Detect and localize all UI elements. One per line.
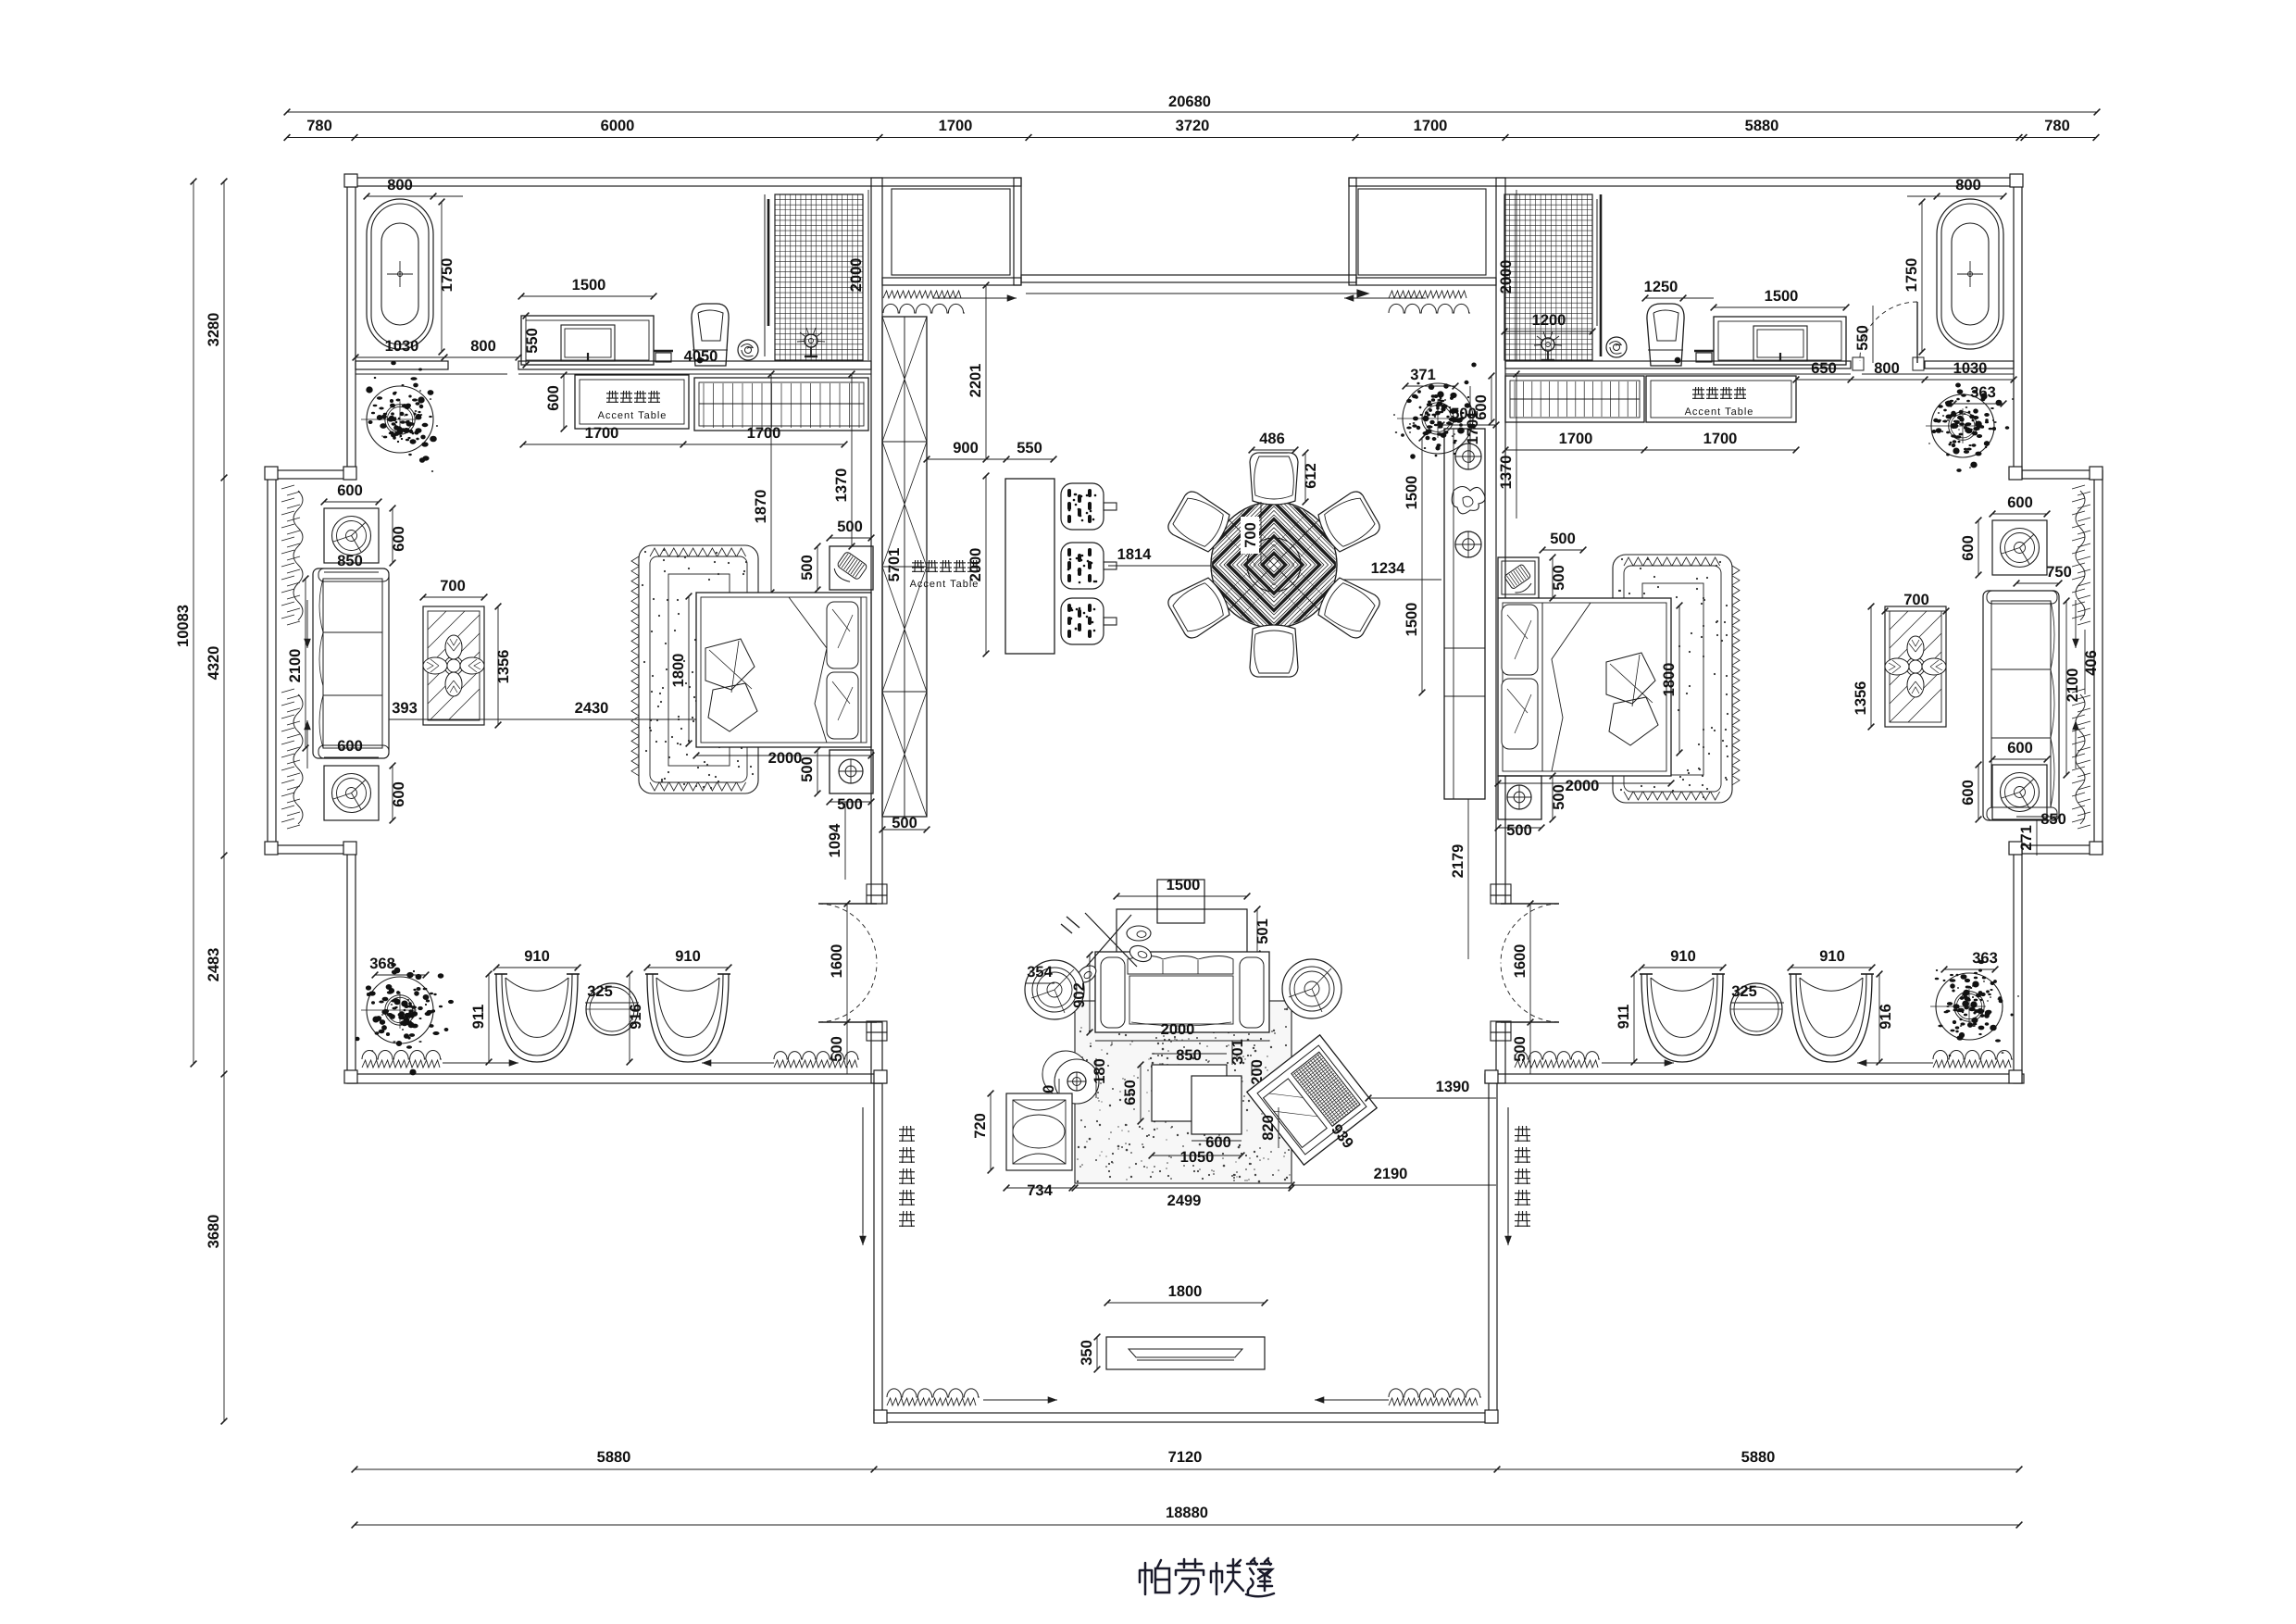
svg-text:1700: 1700 bbox=[1559, 431, 1593, 447]
svg-text:500: 500 bbox=[1551, 565, 1567, 591]
svg-text:501: 501 bbox=[1254, 918, 1271, 944]
svg-text:2483: 2483 bbox=[206, 948, 222, 982]
svg-text:1370: 1370 bbox=[833, 468, 850, 503]
svg-text:Accent Table: Accent Table bbox=[1685, 406, 1754, 418]
svg-text:800: 800 bbox=[470, 338, 496, 355]
svg-text:600: 600 bbox=[1960, 780, 1977, 806]
svg-text:1390: 1390 bbox=[1436, 1079, 1470, 1095]
svg-text:1700: 1700 bbox=[1703, 431, 1738, 447]
svg-text:1500: 1500 bbox=[1765, 288, 1799, 305]
svg-text:800: 800 bbox=[387, 177, 413, 194]
svg-text:600: 600 bbox=[1473, 394, 1490, 420]
svg-text:301: 301 bbox=[1229, 1039, 1246, 1065]
svg-text:600: 600 bbox=[1960, 535, 1977, 561]
svg-text:720: 720 bbox=[972, 1113, 989, 1139]
svg-text:910: 910 bbox=[675, 948, 701, 965]
svg-text:1500: 1500 bbox=[1404, 603, 1420, 637]
svg-text:911: 911 bbox=[470, 1005, 487, 1030]
svg-text:10083: 10083 bbox=[175, 605, 192, 647]
svg-text:2201: 2201 bbox=[967, 364, 984, 398]
svg-text:550: 550 bbox=[1854, 325, 1871, 351]
svg-text:325: 325 bbox=[587, 983, 613, 1000]
svg-text:6000: 6000 bbox=[601, 118, 635, 134]
svg-text:820: 820 bbox=[1260, 1115, 1277, 1141]
svg-text:916: 916 bbox=[628, 1004, 644, 1030]
svg-text:2100: 2100 bbox=[2065, 668, 2081, 703]
svg-text:500: 500 bbox=[837, 518, 863, 535]
svg-text:911: 911 bbox=[1616, 1005, 1632, 1030]
svg-text:650: 650 bbox=[1811, 360, 1837, 377]
svg-text:2000: 2000 bbox=[1161, 1021, 1195, 1038]
svg-text:600: 600 bbox=[2007, 740, 2033, 756]
svg-text:1700: 1700 bbox=[747, 425, 781, 442]
svg-text:600: 600 bbox=[337, 482, 363, 499]
svg-text:550: 550 bbox=[1017, 440, 1042, 456]
svg-text:20680: 20680 bbox=[1168, 94, 1211, 110]
svg-text:1500: 1500 bbox=[1167, 877, 1201, 893]
svg-text:363: 363 bbox=[1972, 950, 1998, 967]
svg-text:406: 406 bbox=[2083, 650, 2100, 676]
svg-text:500: 500 bbox=[1551, 784, 1567, 810]
svg-text:1814: 1814 bbox=[1117, 546, 1153, 563]
svg-text:2499: 2499 bbox=[1167, 1193, 1202, 1209]
svg-text:500: 500 bbox=[1506, 822, 1532, 839]
svg-text:180: 180 bbox=[1092, 1058, 1108, 1084]
svg-text:1094: 1094 bbox=[827, 823, 843, 858]
svg-text:550: 550 bbox=[524, 328, 541, 354]
svg-text:393: 393 bbox=[392, 700, 418, 717]
svg-text:1700: 1700 bbox=[939, 118, 973, 134]
svg-text:1200: 1200 bbox=[1532, 312, 1566, 329]
svg-text:325: 325 bbox=[1731, 983, 1757, 1000]
svg-text:3720: 3720 bbox=[1176, 118, 1210, 134]
svg-text:700: 700 bbox=[1903, 592, 1929, 608]
svg-text:500: 500 bbox=[799, 756, 816, 782]
svg-text:600: 600 bbox=[337, 738, 363, 755]
svg-text:1030: 1030 bbox=[1953, 360, 1988, 377]
svg-text:1800: 1800 bbox=[1661, 663, 1678, 697]
svg-text:500: 500 bbox=[837, 796, 863, 813]
svg-text:1500: 1500 bbox=[572, 277, 606, 294]
svg-text:2179: 2179 bbox=[1450, 844, 1466, 879]
svg-text:1800: 1800 bbox=[1168, 1283, 1203, 1300]
svg-text:363: 363 bbox=[1970, 384, 1996, 401]
svg-text:1870: 1870 bbox=[753, 490, 769, 524]
svg-text:Accent Table: Accent Table bbox=[598, 410, 668, 421]
svg-text:5701: 5701 bbox=[886, 548, 903, 582]
svg-text:350: 350 bbox=[1079, 1340, 1095, 1366]
svg-text:4050: 4050 bbox=[684, 348, 718, 365]
svg-text:600: 600 bbox=[391, 781, 407, 807]
svg-text:780: 780 bbox=[2044, 118, 2070, 134]
svg-text:734: 734 bbox=[1027, 1182, 1053, 1199]
svg-text:600: 600 bbox=[545, 385, 562, 411]
svg-text:500: 500 bbox=[799, 555, 816, 581]
svg-text:4320: 4320 bbox=[206, 646, 222, 681]
svg-text:271: 271 bbox=[2018, 825, 2035, 851]
svg-text:910: 910 bbox=[524, 948, 550, 965]
svg-text:612: 612 bbox=[1303, 463, 1319, 489]
svg-text:1234: 1234 bbox=[1371, 560, 1406, 577]
svg-text:500: 500 bbox=[892, 815, 917, 831]
svg-text:5880: 5880 bbox=[597, 1449, 631, 1466]
svg-text:1370: 1370 bbox=[1498, 456, 1515, 490]
svg-text:368: 368 bbox=[369, 956, 395, 972]
svg-text:1600: 1600 bbox=[1512, 944, 1529, 979]
svg-text:1250: 1250 bbox=[1644, 279, 1678, 295]
svg-text:1700: 1700 bbox=[585, 425, 619, 442]
svg-text:2000: 2000 bbox=[1498, 260, 1515, 294]
svg-text:371: 371 bbox=[1410, 367, 1436, 383]
svg-text:2000: 2000 bbox=[1566, 778, 1600, 794]
svg-text:900: 900 bbox=[953, 440, 979, 456]
svg-text:1800: 1800 bbox=[670, 654, 687, 688]
svg-text:486: 486 bbox=[1259, 431, 1285, 447]
svg-text:850: 850 bbox=[1176, 1047, 1202, 1064]
svg-text:3680: 3680 bbox=[206, 1215, 222, 1249]
svg-text:2430: 2430 bbox=[575, 700, 609, 717]
svg-text:902: 902 bbox=[1071, 982, 1088, 1008]
svg-text:780: 780 bbox=[306, 118, 332, 134]
svg-text:910: 910 bbox=[1670, 948, 1696, 965]
svg-text:1500: 1500 bbox=[1404, 476, 1420, 510]
svg-text:910: 910 bbox=[1819, 948, 1845, 965]
svg-text:500: 500 bbox=[1550, 531, 1576, 547]
svg-text:354: 354 bbox=[1027, 964, 1053, 981]
svg-text:600: 600 bbox=[391, 526, 407, 552]
svg-text:916: 916 bbox=[1878, 1004, 1894, 1030]
svg-text:850: 850 bbox=[337, 553, 363, 569]
svg-text:2000: 2000 bbox=[848, 258, 865, 293]
svg-text:1600: 1600 bbox=[829, 944, 845, 979]
svg-text:2000: 2000 bbox=[768, 750, 803, 767]
svg-text:800: 800 bbox=[1874, 360, 1900, 377]
svg-text:1750: 1750 bbox=[1903, 258, 1920, 293]
svg-text:7120: 7120 bbox=[1168, 1449, 1203, 1466]
svg-text:2190: 2190 bbox=[1374, 1166, 1408, 1182]
svg-text:1356: 1356 bbox=[495, 650, 512, 684]
svg-text:5880: 5880 bbox=[1741, 1449, 1776, 1466]
svg-text:1356: 1356 bbox=[1853, 681, 1869, 716]
svg-text:5880: 5880 bbox=[1745, 118, 1779, 134]
svg-text:1750: 1750 bbox=[439, 258, 455, 293]
svg-text:800: 800 bbox=[1955, 177, 1981, 194]
svg-text:650: 650 bbox=[1122, 1080, 1139, 1106]
svg-text:2100: 2100 bbox=[287, 649, 304, 683]
svg-text:3280: 3280 bbox=[206, 313, 222, 347]
svg-text:1700: 1700 bbox=[1414, 118, 1448, 134]
svg-text:700: 700 bbox=[440, 578, 466, 594]
svg-text:18880: 18880 bbox=[1166, 1505, 1208, 1521]
svg-text:1030: 1030 bbox=[385, 338, 419, 355]
svg-text:2000: 2000 bbox=[967, 548, 984, 582]
svg-text:1050: 1050 bbox=[1180, 1149, 1215, 1166]
svg-text:750: 750 bbox=[2046, 564, 2072, 581]
svg-text:600: 600 bbox=[2007, 494, 2033, 511]
svg-text:700: 700 bbox=[1242, 522, 1259, 548]
